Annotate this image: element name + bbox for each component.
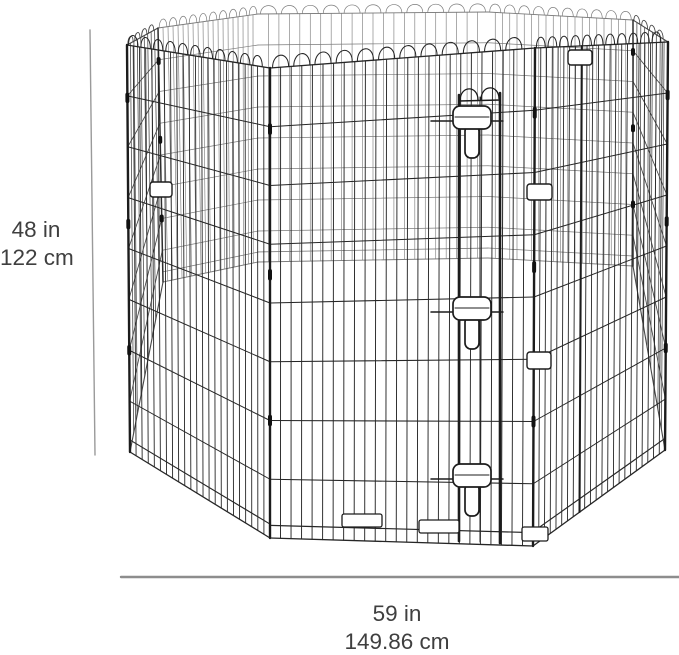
playpen-illustration xyxy=(0,0,679,655)
height-dimension-line xyxy=(90,30,95,455)
width-dimension-label: 59 in 149.86 cm xyxy=(287,600,507,655)
product-dimension-diagram: 48 in 122 cm 59 in 149.86 cm xyxy=(0,0,679,655)
height-dimension-label: 48 in 122 cm xyxy=(0,216,72,272)
height-value-cm: 122 cm xyxy=(0,244,72,272)
width-value-cm: 149.86 cm xyxy=(287,628,507,655)
height-value-inches: 48 in xyxy=(0,216,72,244)
width-value-inches: 59 in xyxy=(287,600,507,628)
